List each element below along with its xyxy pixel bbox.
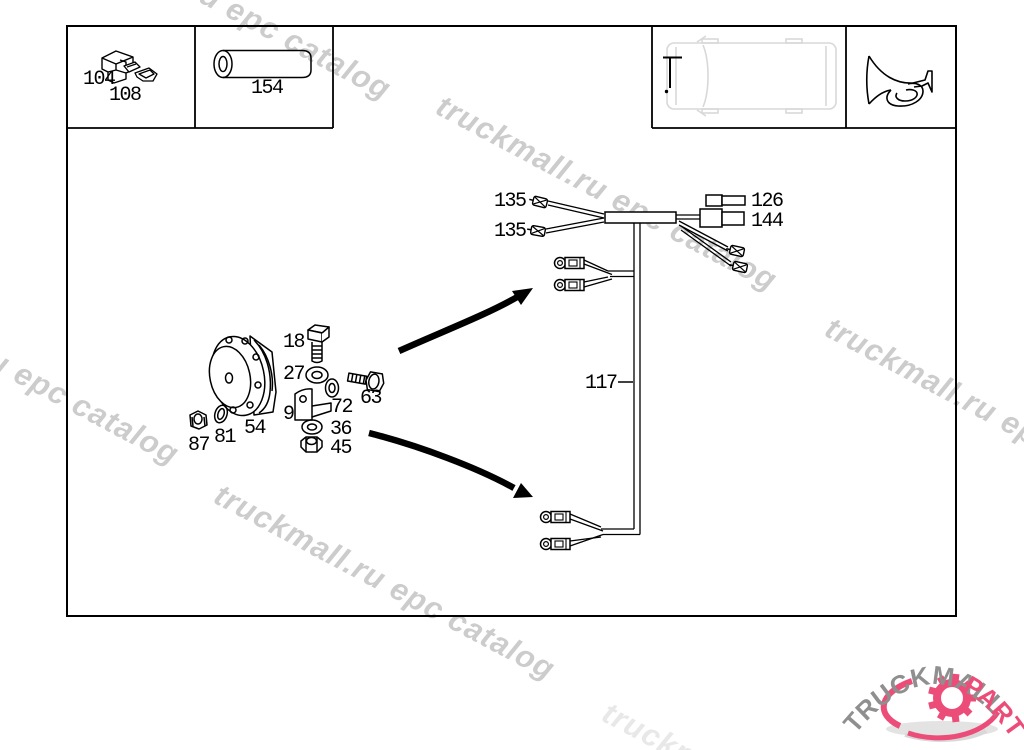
catalog-page: truckmall.ru epc catalog truckmall.ru ep… xyxy=(0,0,1024,750)
part-label-144[interactable]: 144 xyxy=(751,212,783,232)
part-label-72[interactable]: 72 xyxy=(331,398,352,418)
thumbnail-horn-group[interactable] xyxy=(846,25,956,128)
part-label-27[interactable]: 27 xyxy=(283,365,304,385)
blade-terminal xyxy=(728,260,747,273)
blade-terminal xyxy=(528,195,548,208)
thumbnail-sleeve-154[interactable] xyxy=(195,25,333,128)
part-label-45[interactable]: 45 xyxy=(330,439,351,459)
part-label-126[interactable]: 126 xyxy=(751,192,783,212)
blade-terminal xyxy=(526,225,545,237)
part-label-18[interactable]: 18 xyxy=(283,333,304,353)
part-label-135b[interactable]: 135 xyxy=(494,222,526,242)
thumbnail-vehicle-view[interactable] xyxy=(652,25,846,128)
part-label-9[interactable]: 9 xyxy=(283,405,294,425)
part-label-117[interactable]: 117 xyxy=(585,374,617,394)
ring-terminal xyxy=(555,280,585,291)
blade-terminal xyxy=(725,244,744,257)
part-label-135a[interactable]: 135 xyxy=(494,192,526,212)
wiring-harness-drawing xyxy=(526,195,747,550)
ring-terminal xyxy=(541,512,571,523)
ring-terminal xyxy=(555,258,585,269)
part-label-81[interactable]: 81 xyxy=(214,428,235,448)
ring-terminal xyxy=(541,539,571,550)
arrow-to-lower-connectors xyxy=(369,433,533,498)
part-label-63[interactable]: 63 xyxy=(360,389,381,409)
part-label-87[interactable]: 87 xyxy=(188,436,209,456)
part-label-54[interactable]: 54 xyxy=(244,419,265,439)
thumbnail-connector-parts[interactable] xyxy=(66,25,195,128)
arrow-to-upper-connectors xyxy=(399,288,533,351)
